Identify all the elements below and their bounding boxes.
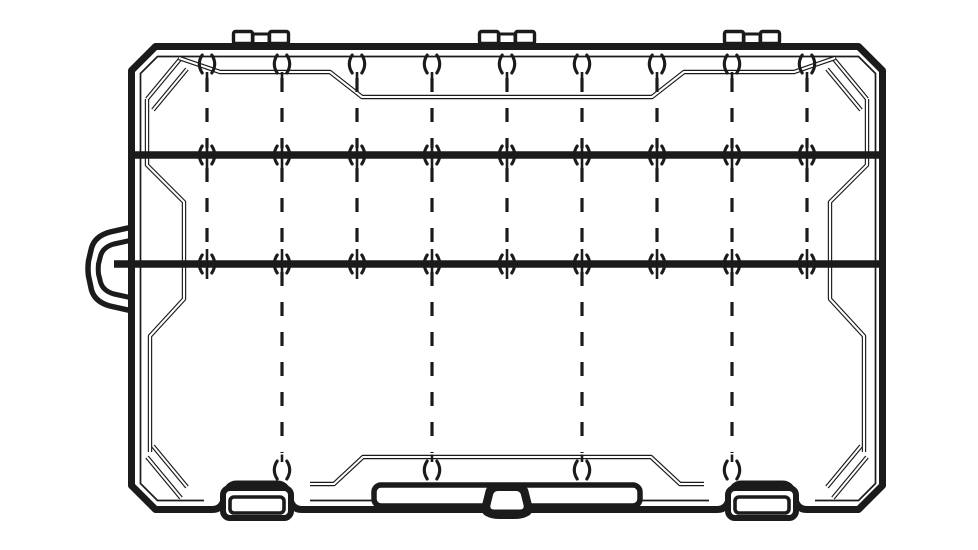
latch-right bbox=[728, 488, 796, 518]
latch-left bbox=[223, 488, 291, 518]
organizer-box-top-view-diagram bbox=[0, 0, 978, 550]
carry-handle bbox=[88, 227, 132, 311]
hinge bbox=[725, 32, 780, 44]
hinge bbox=[234, 32, 289, 44]
illustration-stage bbox=[0, 0, 978, 550]
hinge bbox=[480, 32, 535, 44]
bottom-pull-handle bbox=[482, 485, 533, 519]
hinge-group bbox=[234, 32, 780, 44]
